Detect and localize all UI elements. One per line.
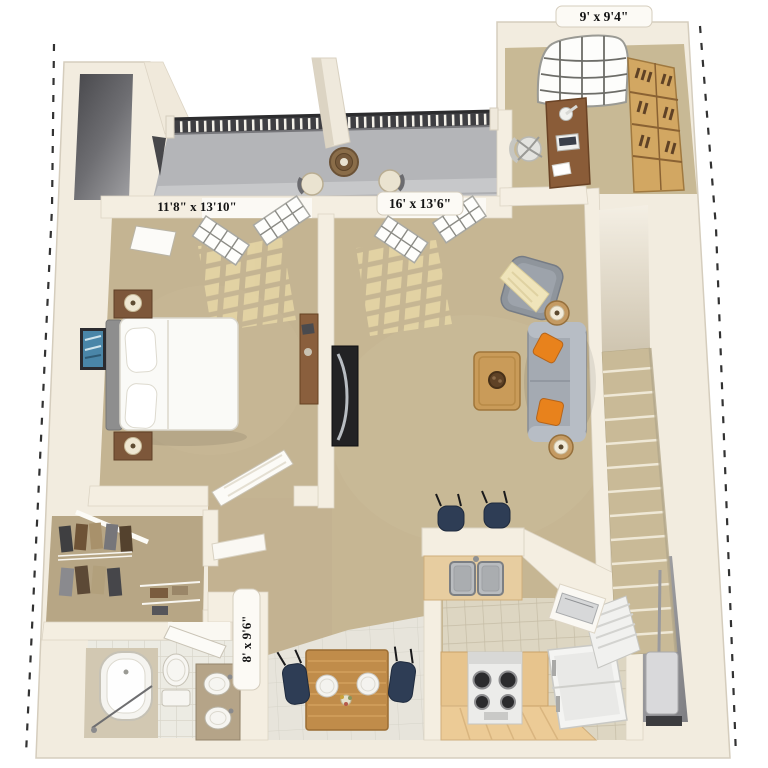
vanity-sink-bottom <box>205 707 231 729</box>
sofa-back-cushions <box>570 328 586 436</box>
two-story-shaft <box>74 74 133 200</box>
pillow-top <box>125 327 158 373</box>
kitchen-faucet <box>473 556 479 562</box>
dresser-vase <box>304 348 312 356</box>
railing-post-left <box>166 116 174 138</box>
bedroom-dimensions-label: 11'8" x 13'10" <box>157 199 236 214</box>
toilet-tank <box>162 690 190 706</box>
patio-chair-right <box>379 170 401 192</box>
living-room-dimensions-label: 16' x 13'6" <box>389 196 451 211</box>
desk-papers <box>552 163 571 177</box>
floorplan-screenshot: 9' x 9'4" 11'8" x 13'10" 16' x 13'6" 8' … <box>0 0 768 768</box>
laptop <box>556 134 579 151</box>
nightstand-lamp-bottom-finial <box>131 444 136 449</box>
tv-console <box>332 346 358 446</box>
counter-right-of-stove <box>522 652 548 706</box>
faucet-top <box>228 675 233 680</box>
railing-post-right <box>490 108 498 130</box>
den-landing-step <box>500 186 588 206</box>
faucet-bottom <box>229 709 234 714</box>
patio-chair-left <box>301 173 323 195</box>
folded-clothes-1 <box>150 588 168 598</box>
dresser-item <box>301 323 314 335</box>
wall-bedroom-bottom-left <box>88 486 208 506</box>
sink-right-basin <box>482 566 499 591</box>
folded-clothes-3 <box>152 606 168 615</box>
floorplan-svg: 9' x 9'4" 11'8" x 13'10" 16' x 13'6" 8' … <box>0 0 768 768</box>
wicker-table-plate <box>340 158 348 166</box>
stove <box>468 652 522 724</box>
stove-display <box>484 712 508 720</box>
bowl-fruit-1 <box>492 376 496 380</box>
bathroom-dimensions-label: 8' x 9'6" <box>239 616 254 663</box>
arched-window <box>538 36 628 107</box>
bathtub-drain <box>124 670 129 675</box>
breakfast-bar-top <box>422 528 524 556</box>
bowl-fruit-2 <box>498 379 502 383</box>
centerpiece-flower-3 <box>344 702 348 706</box>
pillow-bottom <box>125 383 158 429</box>
sink-left-basin <box>454 566 471 591</box>
place-setting-right <box>357 673 379 695</box>
wall-bath-top-left <box>42 622 172 640</box>
folded-clothes-2 <box>172 586 188 595</box>
stairs-upper-flight <box>599 205 650 352</box>
side-table-lamp-top-finial <box>555 311 560 316</box>
den-dimensions-label: 9' x 9'4" <box>580 9 629 24</box>
centerpiece-flower-2 <box>348 696 352 700</box>
place-setting-left <box>316 675 338 697</box>
closet-clothes-row1 <box>59 523 133 553</box>
wall-kitchen-left <box>424 598 441 740</box>
shower-head <box>91 727 97 733</box>
sofa-pillow-bottom <box>536 398 564 426</box>
nightstand-lamp-top-finial <box>131 301 136 306</box>
wall-bedroom-bottom-right <box>294 486 318 506</box>
side-table-lamp-bottom-finial <box>559 445 564 450</box>
decor-bowl <box>489 372 505 388</box>
vanity-sink-top <box>204 673 230 695</box>
centerpiece-flower-1 <box>340 695 344 699</box>
